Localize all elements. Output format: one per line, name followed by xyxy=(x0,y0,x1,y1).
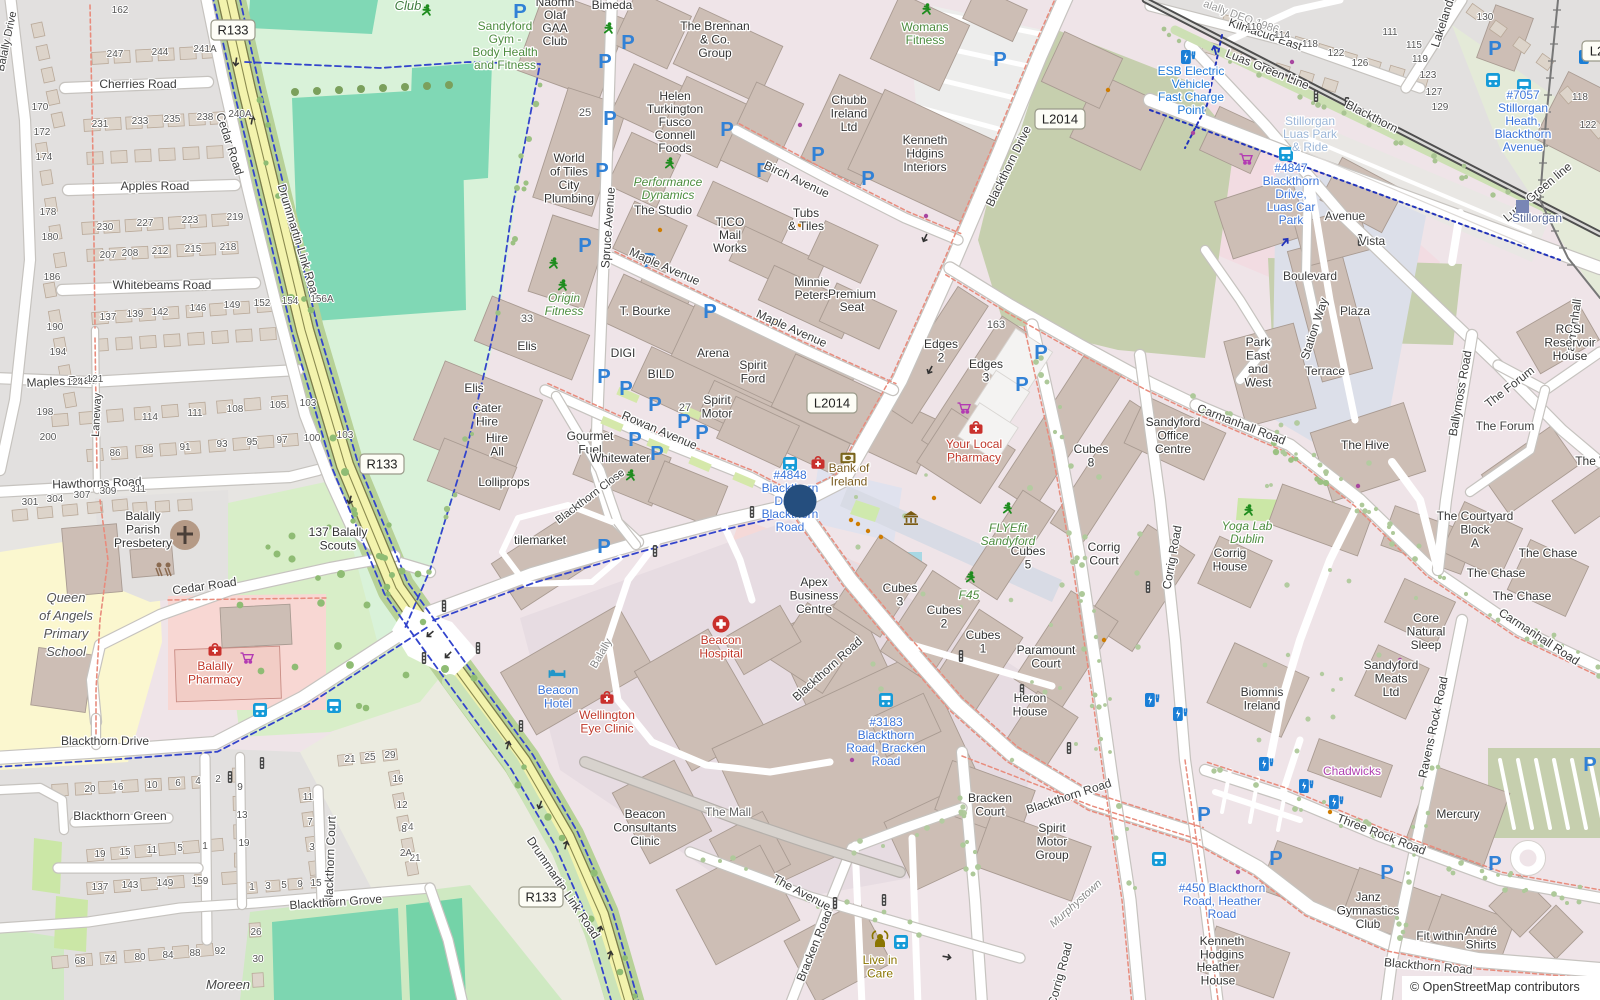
svg-text:L2: L2 xyxy=(1590,44,1600,59)
svg-text:146: 146 xyxy=(190,303,207,314)
svg-text:100: 100 xyxy=(304,433,321,444)
svg-text:130: 130 xyxy=(1477,12,1494,23)
svg-text:P: P xyxy=(1488,853,1502,875)
svg-text:P: P xyxy=(619,378,633,400)
svg-text:20: 20 xyxy=(84,784,96,795)
svg-text:16: 16 xyxy=(112,782,124,793)
svg-text:30: 30 xyxy=(252,954,264,965)
svg-text:CaterHire: CaterHire xyxy=(472,401,501,429)
svg-text:KennethHodgins: KennethHodgins xyxy=(1200,934,1245,962)
svg-text:Elis: Elis xyxy=(517,339,536,353)
svg-text:111: 111 xyxy=(187,408,203,419)
svg-text:301: 301 xyxy=(22,497,39,508)
svg-text:2A: 2A xyxy=(400,848,413,859)
svg-text:Lolliprops: Lolliprops xyxy=(478,475,529,489)
svg-text:BeaconHospital: BeaconHospital xyxy=(699,633,742,661)
svg-text:19: 19 xyxy=(94,849,106,860)
svg-text:19: 19 xyxy=(238,838,250,849)
svg-text:Blackthorn Green: Blackthorn Green xyxy=(73,809,166,823)
svg-text:114: 114 xyxy=(142,412,158,423)
svg-text:T. Bourke: T. Bourke xyxy=(620,304,671,318)
svg-text:244: 244 xyxy=(152,47,169,58)
svg-text:P: P xyxy=(597,366,611,388)
svg-text:P: P xyxy=(1380,862,1394,884)
svg-text:15: 15 xyxy=(119,847,131,858)
svg-text:P: P xyxy=(811,144,825,166)
svg-text:198: 198 xyxy=(37,407,54,418)
svg-text:12: 12 xyxy=(396,800,408,811)
svg-text:11: 11 xyxy=(303,792,314,803)
svg-text:84: 84 xyxy=(162,950,174,961)
svg-text:Terrace: Terrace xyxy=(1305,364,1345,378)
svg-text:230: 230 xyxy=(97,222,114,233)
svg-text:139: 139 xyxy=(127,309,144,320)
svg-text:129: 129 xyxy=(1432,102,1449,113)
svg-text:219: 219 xyxy=(227,212,244,223)
svg-text:231: 231 xyxy=(92,119,109,130)
svg-text:103: 103 xyxy=(337,430,354,441)
svg-text:P: P xyxy=(578,235,592,257)
svg-text:223: 223 xyxy=(182,215,199,226)
svg-text:9: 9 xyxy=(237,782,243,793)
svg-text:P: P xyxy=(703,301,717,323)
svg-text:The Chase: The Chase xyxy=(1467,566,1526,580)
svg-text:5: 5 xyxy=(281,880,287,891)
svg-text:Your LocalPharmacy: Your LocalPharmacy xyxy=(946,437,1002,465)
svg-text:215: 215 xyxy=(185,244,202,255)
svg-text:162: 162 xyxy=(112,5,129,16)
svg-text:P: P xyxy=(1269,848,1283,870)
svg-text:227: 227 xyxy=(137,218,154,229)
svg-text:MinniePeters: MinniePeters xyxy=(794,275,830,302)
svg-text:142: 142 xyxy=(152,307,169,318)
svg-text:118: 118 xyxy=(1572,92,1588,103)
svg-text:Boulevard: Boulevard xyxy=(1283,269,1337,283)
svg-text:122: 122 xyxy=(1328,48,1345,59)
svg-text:Cherries Road: Cherries Road xyxy=(99,77,176,91)
svg-text:Whitewater: Whitewater xyxy=(590,451,650,465)
svg-text:212: 212 xyxy=(152,246,169,257)
svg-text:8: 8 xyxy=(401,824,407,835)
svg-text:HeronHouse: HeronHouse xyxy=(1013,691,1048,719)
svg-text:P: P xyxy=(1034,342,1048,364)
svg-text:Tubs& Tiles: Tubs& Tiles xyxy=(788,206,824,233)
svg-text:123: 123 xyxy=(1420,70,1437,81)
svg-text:Plaza: Plaza xyxy=(1340,304,1370,318)
svg-text:122: 122 xyxy=(1580,120,1597,131)
svg-text:Mercury: Mercury xyxy=(1436,807,1479,821)
svg-text:240A: 240A xyxy=(228,109,252,120)
svg-text:149: 149 xyxy=(157,878,174,889)
svg-text:The Studio: The Studio xyxy=(634,203,692,217)
svg-text:P: P xyxy=(595,160,609,182)
svg-text:HeatherHouse: HeatherHouse xyxy=(1197,960,1240,988)
svg-text:238: 238 xyxy=(197,112,214,123)
svg-text:Arena: Arena xyxy=(697,346,729,360)
svg-text:115: 115 xyxy=(1406,40,1422,51)
svg-text:241A: 241A xyxy=(193,44,217,55)
svg-text:ParkEastandWest: ParkEastandWest xyxy=(1244,335,1272,390)
svg-text:DIGI: DIGI xyxy=(611,346,636,360)
svg-text:P: P xyxy=(628,429,642,451)
svg-text:127: 127 xyxy=(1426,87,1443,98)
svg-text:P: P xyxy=(993,49,1007,71)
svg-text:311: 311 xyxy=(130,484,146,495)
svg-text:170: 170 xyxy=(32,102,49,113)
svg-text:110: 110 xyxy=(1246,22,1262,33)
svg-text:Moreen: Moreen xyxy=(206,977,250,992)
svg-text:The Forum: The Forum xyxy=(1476,419,1535,433)
svg-text:16: 16 xyxy=(392,774,404,785)
svg-text:172: 172 xyxy=(34,127,51,138)
svg-text:11: 11 xyxy=(147,845,158,856)
svg-text:Bimeda: Bimeda xyxy=(592,0,633,12)
svg-text:3: 3 xyxy=(309,842,315,853)
svg-text:2: 2 xyxy=(215,774,221,785)
svg-text:174: 174 xyxy=(36,152,53,163)
svg-text:CorrigHouse: CorrigHouse xyxy=(1213,546,1248,574)
svg-text:BiomnisIreland: BiomnisIreland xyxy=(1241,685,1284,713)
svg-text:15: 15 xyxy=(310,878,322,889)
svg-text:208: 208 xyxy=(122,248,139,259)
svg-text:27: 27 xyxy=(679,402,691,414)
svg-text:304: 304 xyxy=(47,494,64,505)
svg-text:194: 194 xyxy=(50,347,67,358)
svg-text:235: 235 xyxy=(164,114,181,125)
svg-text:CorrigCourt: CorrigCourt xyxy=(1088,540,1121,568)
svg-text:Stillorgan: Stillorgan xyxy=(1512,211,1562,225)
svg-text:105: 105 xyxy=(270,400,287,411)
svg-text:137: 137 xyxy=(100,312,117,323)
svg-text:Whitebeams Road: Whitebeams Road xyxy=(113,278,212,292)
svg-text:190: 190 xyxy=(47,322,64,333)
svg-text:126: 126 xyxy=(1352,58,1369,69)
svg-text:© OpenStreetMap contributors: © OpenStreetMap contributors xyxy=(1410,980,1580,994)
svg-text:Chadwicks: Chadwicks xyxy=(1323,764,1381,778)
svg-text:207: 207 xyxy=(100,250,117,261)
svg-text:25: 25 xyxy=(579,107,591,119)
svg-text:13: 13 xyxy=(236,810,248,821)
svg-text:180: 180 xyxy=(42,232,59,243)
svg-text:80: 80 xyxy=(134,952,146,963)
svg-text:159: 159 xyxy=(192,876,209,887)
svg-text:156A: 156A xyxy=(310,294,334,305)
svg-text:Laneway: Laneway xyxy=(90,392,104,437)
svg-text:118: 118 xyxy=(1302,39,1318,50)
svg-text:P: P xyxy=(677,411,691,433)
svg-text:P: P xyxy=(603,108,617,130)
svg-text:F45: F45 xyxy=(959,588,980,602)
svg-text:Club: Club xyxy=(395,0,422,13)
svg-text:1: 1 xyxy=(202,841,208,852)
svg-text:108: 108 xyxy=(227,404,244,415)
svg-text:P: P xyxy=(648,394,662,416)
svg-text:The Chase: The Chase xyxy=(1493,589,1552,603)
svg-text:68: 68 xyxy=(74,956,86,967)
svg-text:P: P xyxy=(650,443,664,465)
svg-text:152: 152 xyxy=(254,298,271,309)
svg-text:Fit within: Fit within xyxy=(1416,929,1463,943)
svg-text:88: 88 xyxy=(142,445,154,456)
svg-text:93: 93 xyxy=(216,439,228,450)
svg-text:95: 95 xyxy=(246,437,258,448)
svg-text:178: 178 xyxy=(40,207,57,218)
svg-text:Apples Road: Apples Road xyxy=(121,179,190,193)
svg-text:307: 307 xyxy=(74,490,91,501)
svg-text:92: 92 xyxy=(214,946,226,957)
svg-text:29: 29 xyxy=(384,750,396,761)
svg-text:124: 124 xyxy=(67,377,84,388)
svg-text:154: 154 xyxy=(282,296,299,307)
svg-text:163: 163 xyxy=(987,319,1005,331)
svg-text:3: 3 xyxy=(265,881,271,892)
svg-text:KennethHdginsInteriors: KennethHdginsInteriors xyxy=(903,133,948,174)
svg-text:21: 21 xyxy=(344,754,356,765)
svg-text:SpiritMotor: SpiritMotor xyxy=(702,393,733,421)
svg-text:L2014: L2014 xyxy=(814,396,850,411)
svg-text:tilemarket: tilemarket xyxy=(514,533,567,547)
svg-text:The Mall: The Mall xyxy=(705,805,751,819)
svg-text:Bank ofIreland: Bank ofIreland xyxy=(829,461,870,489)
svg-text:Blackthorn Drive: Blackthorn Drive xyxy=(61,734,149,748)
svg-text:R133: R133 xyxy=(366,457,397,472)
svg-text:88: 88 xyxy=(189,948,201,959)
svg-text:114: 114 xyxy=(1274,30,1290,41)
svg-text:SpiritMotorGroup: SpiritMotorGroup xyxy=(1035,821,1069,862)
svg-text:SpiritFord: SpiritFord xyxy=(739,358,767,386)
svg-text:91: 91 xyxy=(179,442,191,453)
svg-text:200: 200 xyxy=(40,432,57,443)
svg-text:86: 86 xyxy=(109,448,121,459)
svg-text:1: 1 xyxy=(249,882,255,893)
svg-text:97: 97 xyxy=(276,435,288,446)
svg-text:4: 4 xyxy=(195,776,201,787)
svg-text:6: 6 xyxy=(175,778,181,789)
svg-text:7: 7 xyxy=(307,817,313,828)
svg-text:P: P xyxy=(1015,374,1029,396)
svg-text:Vista: Vista xyxy=(1359,234,1386,248)
svg-text:R133: R133 xyxy=(525,890,556,905)
svg-text:L2014: L2014 xyxy=(1042,112,1078,127)
svg-text:The Wa: The Wa xyxy=(1575,454,1600,468)
svg-text:247: 247 xyxy=(107,49,124,60)
svg-text:121: 121 xyxy=(87,374,104,385)
svg-text:P: P xyxy=(1583,754,1597,776)
svg-text:P: P xyxy=(598,51,612,73)
svg-text:OriginFitness: OriginFitness xyxy=(545,291,584,318)
svg-text:218: 218 xyxy=(220,242,237,253)
svg-text:P: P xyxy=(861,168,875,190)
svg-text:P: P xyxy=(597,536,611,558)
svg-text:PerformanceDynamics: PerformanceDynamics xyxy=(634,175,703,202)
svg-text:186: 186 xyxy=(44,272,61,283)
svg-text:BILD: BILD xyxy=(648,367,675,381)
svg-text:Avenue: Avenue xyxy=(1325,209,1366,223)
svg-text:P: P xyxy=(1197,804,1211,826)
svg-text:9: 9 xyxy=(297,879,303,890)
svg-text:WellingtonEye Clinic: WellingtonEye Clinic xyxy=(579,708,635,736)
svg-text:5: 5 xyxy=(177,843,183,854)
svg-text:103: 103 xyxy=(300,398,317,409)
svg-text:111: 111 xyxy=(1382,27,1398,38)
svg-text:AndréShirts: AndréShirts xyxy=(1465,924,1497,952)
svg-text:P: P xyxy=(1488,38,1502,60)
svg-text:74: 74 xyxy=(104,954,116,965)
svg-text:R133: R133 xyxy=(217,23,248,38)
svg-text:233: 233 xyxy=(132,116,149,127)
svg-text:119: 119 xyxy=(1412,54,1428,65)
svg-text:10: 10 xyxy=(146,780,158,791)
svg-text:SandyfordGym -Body Healthand F: SandyfordGym -Body Healthand Fitness xyxy=(472,19,537,72)
svg-text:149: 149 xyxy=(224,300,241,311)
svg-text:P: P xyxy=(621,32,635,54)
svg-text:309: 309 xyxy=(100,486,117,497)
svg-text:The Chase: The Chase xyxy=(1519,546,1578,560)
svg-text:The Hive: The Hive xyxy=(1341,438,1389,452)
svg-text:25: 25 xyxy=(364,752,376,763)
svg-text:Elis: Elis xyxy=(464,381,483,395)
svg-text:26: 26 xyxy=(250,927,262,938)
svg-text:143: 143 xyxy=(122,880,139,891)
svg-text:WomansFitness: WomansFitness xyxy=(901,20,948,47)
svg-text:137: 137 xyxy=(92,882,109,893)
svg-text:33: 33 xyxy=(521,313,533,325)
svg-text:P: P xyxy=(720,119,734,141)
svg-text:Live inCare: Live inCare xyxy=(863,953,898,981)
